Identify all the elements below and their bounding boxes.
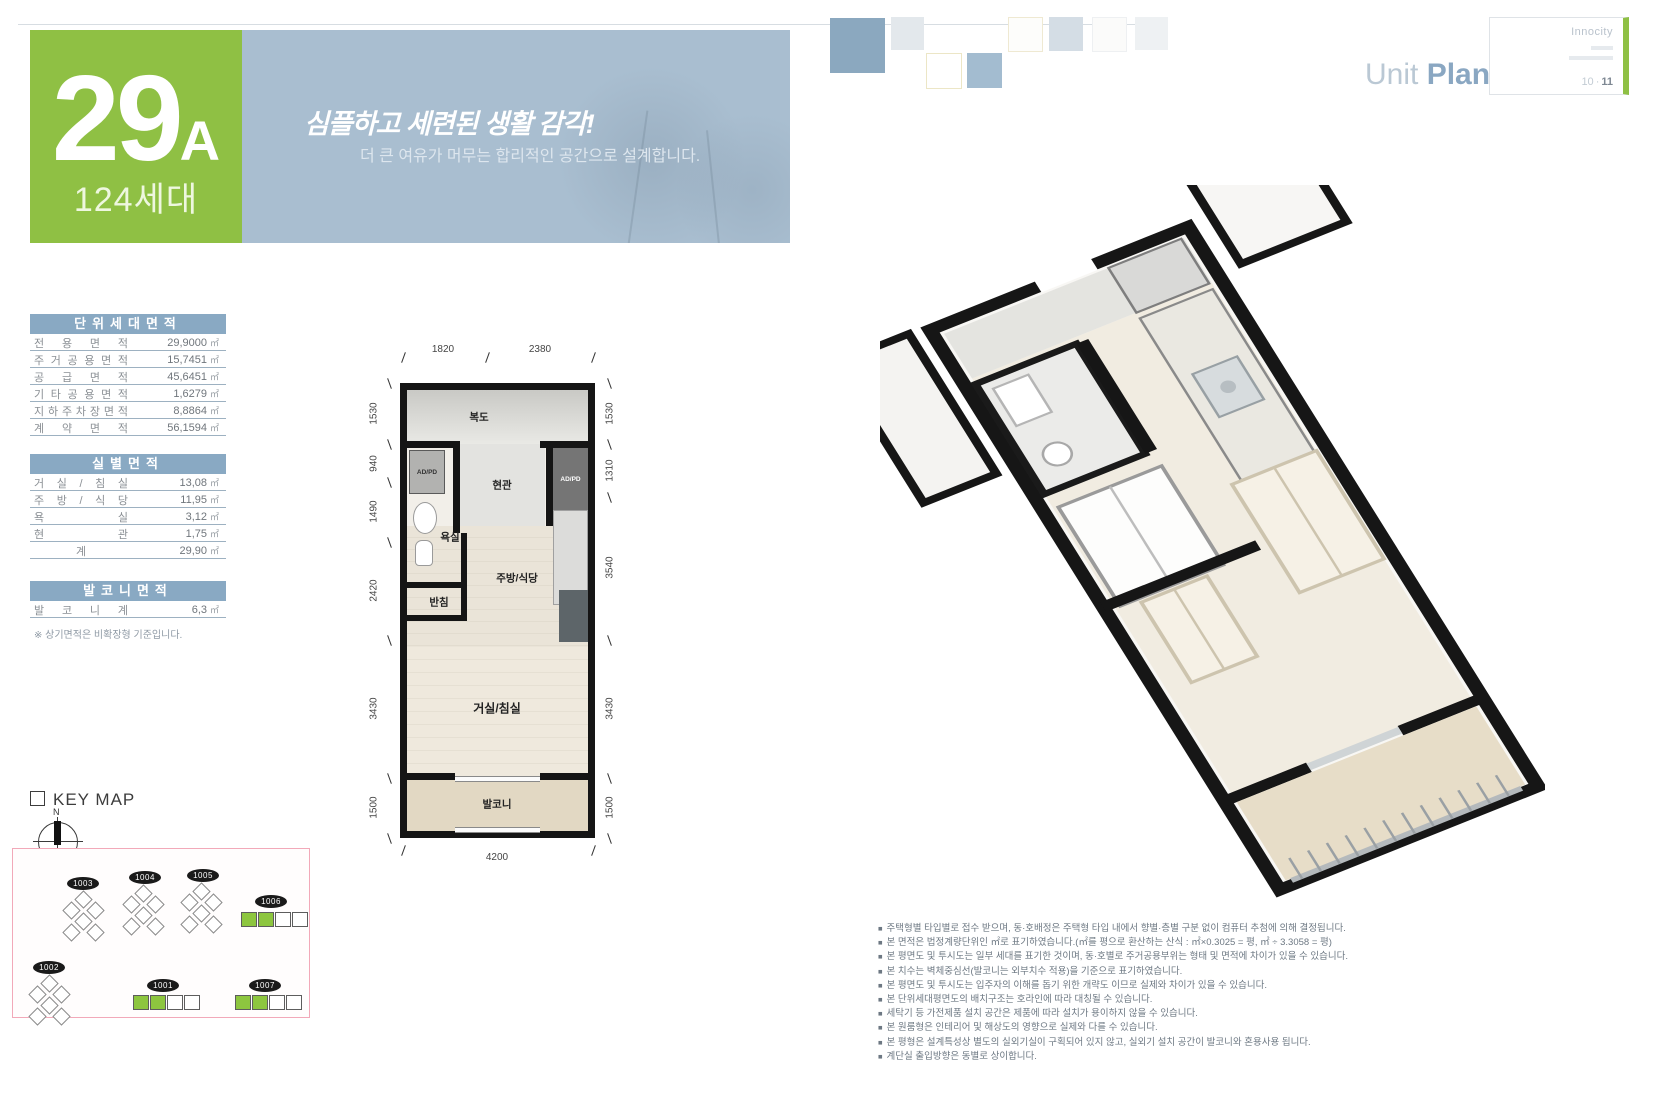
kitchen-appliance: [559, 590, 588, 642]
note-line: ■세탁기 등 가전제품 설치 공간은 제품에 따라 설치가 용이하지 않을 수 …: [878, 1007, 1648, 1021]
building-footprint: [235, 995, 303, 1010]
inner-wall: [453, 441, 460, 533]
building-label: 1001: [147, 979, 179, 992]
dim-bottom: 4200: [475, 852, 519, 863]
mosaic-square: [1135, 17, 1168, 50]
bullet-icon: ■: [878, 967, 883, 976]
dim-right-1: 1530: [605, 392, 616, 436]
keymap-square-icon: [30, 791, 45, 806]
building-footprint: [175, 885, 227, 931]
banner-headline: 심플하고 세련된 생활 감각!: [304, 102, 594, 141]
mosaic-square: [1049, 17, 1083, 51]
building-label: 1004: [129, 871, 161, 884]
dim-left-2: 940: [369, 442, 380, 486]
dim-tick: [591, 352, 596, 363]
title-word-unit: Unit: [1365, 58, 1418, 91]
building-label: 1005: [187, 869, 219, 882]
bullet-icon: ■: [878, 981, 883, 990]
bath-sink: [413, 502, 437, 534]
page-number-left: 10: [1581, 76, 1593, 88]
table-row: 기 타 공 용 면 적1,6279㎡: [30, 385, 226, 402]
area-note: ※ 상기면적은 비확장형 기준입니다.: [34, 626, 182, 641]
dim-tick: [387, 537, 392, 548]
room-label-balcony: 발코니: [483, 797, 512, 812]
dim-tick: [607, 635, 612, 646]
dim-right-4: 3430: [605, 687, 616, 731]
headline-banner: 심플하고 세련된 생활 감각! 더 큰 여유가 머무는 합리적인 공간으로 설계…: [242, 30, 790, 243]
inner-wall: [407, 582, 467, 588]
inner-wall: [461, 533, 467, 621]
room-label-closet: 반침: [429, 595, 448, 610]
brochure-page: 29A 124세대 심플하고 세련된 생활 감각! 더 큰 여유가 머무는 합리…: [0, 0, 1656, 1094]
note-line: ■본 평면도 및 투시도는 일부 세대를 표기한 것이며, 동·호별로 주거공용…: [878, 950, 1648, 964]
brand-name: Innocity: [1571, 26, 1613, 38]
floorplan-2d: AD/PD AD/PD 복도 현관 욕실 반침 주방/식당 거실/침실 발코니: [400, 383, 595, 838]
table-row: 발 코 니 계6,3㎡: [30, 601, 226, 618]
dim-left-3: 1490: [369, 490, 380, 534]
note-line: ■본 원룸형은 인테리어 및 해상도의 영향으로 실제와 다를 수 있습니다.: [878, 1021, 1648, 1035]
note-line: ■본 면적은 법정계량단위인 ㎡로 표기하였습니다.(㎡를 평으로 환산하는 산…: [878, 936, 1648, 950]
dim-tick: [387, 439, 392, 450]
table-row: 거 실 / 침 실13,08㎡: [30, 474, 226, 491]
adpd-shaft-right: AD/PD: [553, 448, 588, 510]
room-area-table: 실별면적 거 실 / 침 실13,08㎡ 주 방 / 식 당11,95㎡ 욕 실…: [30, 454, 226, 559]
bullet-icon: ■: [878, 995, 883, 1004]
brand-tagline-decoration: [1569, 56, 1613, 60]
bullet-icon: ■: [878, 1038, 883, 1047]
dim-tick: [387, 773, 392, 784]
dim-right-3: 3540: [605, 546, 616, 590]
table-row: 계 약 면 적56,1594㎡: [30, 419, 226, 436]
building-label: 1006: [255, 895, 287, 908]
dim-left-4: 2420: [369, 569, 380, 613]
bullet-icon: ■: [878, 938, 883, 947]
room-label-bath: 욕실: [440, 530, 459, 545]
room-label-kitchen: 주방/식당: [496, 571, 538, 586]
page-number: 10·11: [1581, 76, 1613, 88]
building-footprint: [117, 887, 169, 933]
floorplan-3d: [880, 185, 1545, 900]
compass-north-label: N: [53, 807, 60, 817]
keymap-title: KEY MAP: [30, 790, 135, 810]
building-footprint: [133, 995, 201, 1010]
table-row: 욕 실3,12㎡: [30, 508, 226, 525]
dim-top-2: 2380: [518, 344, 562, 355]
inner-wall: [407, 615, 467, 621]
dim-tick: [387, 833, 392, 844]
households-count: 124세대: [30, 172, 242, 221]
dim-tick: [387, 378, 392, 389]
table-row: 전 용 면 적29,9000㎡: [30, 334, 226, 351]
building-footprint: [23, 977, 75, 1023]
top-rule: [18, 24, 1140, 25]
inner-wall: [407, 773, 455, 780]
dim-right-5: 1500: [605, 786, 616, 830]
dim-tick: [401, 352, 406, 363]
room-label-corridor: 복도: [469, 410, 488, 425]
dim-tick: [607, 492, 612, 503]
page-number-right: 11: [1601, 76, 1613, 88]
page-title: Unit Plan: [1365, 58, 1490, 92]
note-line: ■본 평면도 및 투시도는 입주자의 이해를 돕기 위한 개략도 이므로 실제와…: [878, 979, 1648, 993]
table-header: 실별면적: [30, 454, 226, 474]
dim-left-1: 1530: [369, 392, 380, 436]
note-line: ■계단실 출입방향은 동별로 상이합니다.: [878, 1050, 1648, 1064]
inner-wall: [540, 773, 588, 780]
adpd-shaft-left: AD/PD: [409, 450, 445, 494]
banner-subline: 더 큰 여유가 머무는 합리적인 공간으로 설계합니다.: [360, 142, 700, 166]
note-line: ■본 평형은 설계특성상 별도의 실외기실이 구획되어 있지 않고, 실외기 설…: [878, 1036, 1648, 1050]
unit-type-badge: 29A 124세대: [30, 30, 242, 243]
room-label-entrance: 현관: [492, 478, 511, 493]
unit-area-table: 단위세대면적 전 용 면 적29,9000㎡ 주 거 공 용 면 적15,745…: [30, 314, 226, 436]
mosaic-square: [967, 53, 1002, 88]
table-row: 주 거 공 용 면 적15,7451㎡: [30, 351, 226, 368]
dim-left-5: 3430: [369, 687, 380, 731]
mosaic-square: [926, 53, 962, 89]
balcony-area-table: 발코니면적 발 코 니 계6,3㎡: [30, 581, 226, 618]
mosaic-square: [1008, 17, 1043, 52]
dim-tick: [485, 352, 490, 363]
title-word-plan: Plan: [1427, 58, 1490, 91]
room-label-living: 거실/침실: [473, 700, 521, 717]
keymap-box: 1003 1004 1005 1006 1002 1001 10: [12, 848, 310, 1018]
table-row: 지 하 주 차 장 면 적8,8864㎡: [30, 402, 226, 419]
dim-tick: [387, 477, 392, 488]
bullet-icon: ■: [878, 1052, 883, 1061]
compass-needle: [54, 821, 61, 845]
building-footprint: [57, 893, 109, 939]
table-header: 단위세대면적: [30, 314, 226, 334]
building-label: 1007: [249, 979, 281, 992]
bath-toilet: [415, 540, 433, 566]
mosaic-square: [1092, 17, 1127, 52]
inner-wall: [546, 441, 553, 526]
bullet-icon: ■: [878, 952, 883, 961]
brand-tagline-decoration: [1591, 46, 1613, 50]
table-header: 발코니면적: [30, 581, 226, 601]
table-row: 주 방 / 식 당11,95㎡: [30, 491, 226, 508]
dim-left-6: 1500: [369, 786, 380, 830]
dim-tick: [401, 845, 406, 856]
table-row: 현 관1,75㎡: [30, 525, 226, 542]
balcony-window: [455, 827, 540, 833]
dim-right-2: 1310: [605, 449, 616, 493]
note-line: ■본 치수는 벽체중심선(발코니는 외부치수 적용)을 기준으로 표기하였습니다…: [878, 965, 1648, 979]
note-line: ■본 단위세대평면도의 배치구조는 호라인에 따라 대칭될 수 있습니다.: [878, 993, 1648, 1007]
mosaic-square: [891, 17, 924, 50]
bullet-icon: ■: [878, 924, 883, 933]
bullet-icon: ■: [878, 1023, 883, 1032]
balcony-window: [455, 776, 540, 782]
building-label: 1002: [33, 961, 65, 974]
building-label: 1003: [67, 877, 99, 890]
dim-top-1: 1820: [421, 344, 465, 355]
disclaimer-notes: ■주택형별 타입별로 접수 받으며, 동·호배정은 주택형 타입 내에서 향별·…: [878, 922, 1648, 1064]
mosaic-square: [830, 18, 885, 73]
dim-tick: [607, 833, 612, 844]
note-line: ■주택형별 타입별로 접수 받으며, 동·호배정은 주택형 타입 내에서 향별·…: [878, 922, 1648, 936]
dim-tick: [591, 845, 596, 856]
bullet-icon: ■: [878, 1009, 883, 1018]
unit-type-letter: A: [180, 109, 220, 172]
table-row: 공 급 면 적45,6451㎡: [30, 368, 226, 385]
dim-tick: [387, 635, 392, 646]
dim-tick: [607, 773, 612, 784]
room-corridor-floor: [407, 390, 588, 444]
dim-tick: [607, 378, 612, 389]
building-footprint: [241, 912, 309, 927]
table-row: 계29,90㎡: [30, 542, 226, 559]
brand-box: Innocity 10·11: [1489, 17, 1629, 95]
inner-wall: [407, 441, 455, 448]
